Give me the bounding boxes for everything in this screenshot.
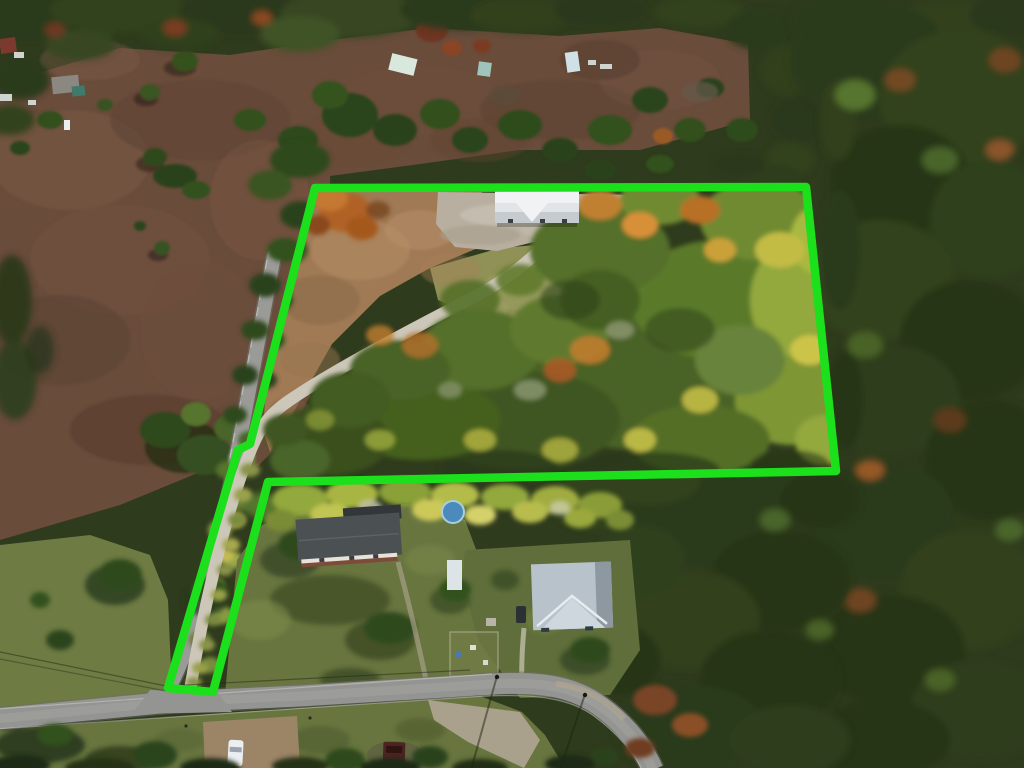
- pasture-tree: [498, 110, 542, 140]
- autumn-tree: [464, 429, 496, 451]
- autumn-tree: [624, 428, 656, 452]
- lawn-shade: [46, 630, 74, 650]
- roadside-tree: [223, 406, 247, 424]
- forest-canopy: [163, 20, 187, 36]
- autumn-tree: [346, 216, 378, 240]
- pasture-tree: [312, 81, 348, 109]
- house-b-window: [585, 626, 593, 630]
- lawn-shade: [364, 612, 416, 644]
- forest-canopy: [835, 80, 875, 110]
- forest-canopy: [780, 472, 860, 528]
- pasture-tree: [37, 111, 63, 129]
- autumn-tree: [496, 264, 544, 296]
- forest-canopy: [995, 519, 1024, 541]
- autumn-tree: [440, 280, 500, 320]
- pasture-tree: [674, 118, 706, 142]
- white-trailer: [0, 94, 12, 101]
- autumn-tree: [199, 639, 215, 651]
- house-a-window: [373, 554, 378, 558]
- forest-canopy: [260, 16, 340, 52]
- car-windshield: [230, 747, 242, 753]
- foreground-tree: [591, 747, 619, 765]
- pasture-tree: [10, 141, 30, 155]
- small-shed: [600, 64, 612, 69]
- pasture-tree: [442, 40, 462, 56]
- pasture-tree: [726, 118, 758, 142]
- pasture-tree: [373, 114, 417, 146]
- red-roof-house: [0, 37, 17, 54]
- forest-canopy: [806, 620, 834, 640]
- blue-garden-box: [455, 652, 462, 658]
- pasture-tree: [452, 127, 488, 153]
- main-house-door: [508, 219, 513, 223]
- autumn-tree: [222, 538, 240, 552]
- lawn-shade: [491, 570, 519, 590]
- white-rv: [447, 560, 462, 590]
- utility-pole: [495, 675, 499, 679]
- parked-car: [64, 120, 70, 130]
- sunlit-tree: [464, 505, 496, 525]
- foreground-tree: [625, 738, 655, 758]
- gravel-streak: [440, 225, 520, 245]
- main-house: [495, 189, 579, 227]
- forest-canopy: [715, 155, 765, 175]
- pasture-tree: [140, 84, 160, 100]
- forest-canopy: [844, 588, 876, 612]
- pasture-tree: [97, 99, 113, 111]
- house-b-window: [541, 628, 549, 632]
- pasture-tree: [473, 39, 491, 53]
- forest-canopy: [934, 408, 966, 432]
- pasture-tree: [584, 160, 616, 180]
- pasture-tree: [154, 241, 170, 255]
- house-a-window: [319, 558, 324, 562]
- roadside-tree: [232, 365, 258, 385]
- autumn-tree: [544, 358, 576, 382]
- teal-outbuilding: [477, 61, 492, 77]
- house-b: [531, 562, 613, 633]
- forest-canopy: [847, 332, 883, 358]
- forest-canopy: [925, 669, 955, 691]
- main-house-window: [540, 219, 545, 223]
- white-shed: [28, 100, 36, 105]
- autumn-tree: [270, 440, 330, 480]
- forest-canopy: [989, 48, 1021, 72]
- lawn-shade: [570, 637, 610, 663]
- forest-canopy: [820, 190, 860, 310]
- autumn-tree: [755, 232, 805, 268]
- pasture-tree: [646, 155, 674, 173]
- forest-canopy: [856, 460, 884, 480]
- pasture-tree: [542, 138, 578, 162]
- small-shed: [588, 60, 596, 65]
- autumn-tree: [578, 190, 622, 220]
- foreground-tree: [133, 741, 177, 768]
- autumn-tree: [682, 387, 718, 413]
- autumn-tree: [306, 410, 334, 430]
- autumn-tree: [217, 564, 233, 576]
- autumn-tree: [680, 196, 720, 224]
- forest-canopy: [760, 509, 790, 531]
- autumn-tree: [570, 336, 610, 364]
- autumn-tree: [205, 614, 221, 626]
- autumn-tree: [622, 212, 658, 238]
- main-house-shadow: [497, 223, 577, 227]
- autumn-tree: [263, 414, 307, 446]
- autumn-tree: [704, 238, 736, 262]
- roadside-tree: [249, 273, 281, 297]
- autumn-tree: [438, 382, 462, 398]
- autumn-tree: [186, 677, 202, 687]
- autumn-tree: [211, 589, 227, 601]
- mailbox: [308, 716, 311, 719]
- autumn-tree: [402, 332, 438, 358]
- autumn-tree: [192, 662, 208, 674]
- pasture-tree: [420, 99, 460, 129]
- autumn-tree: [606, 321, 634, 339]
- aerial-photo: [0, 0, 1024, 768]
- garden-shed: [486, 618, 496, 626]
- forest-canopy: [725, 10, 795, 50]
- sunlit-tree: [606, 510, 634, 530]
- truck-cab: [386, 746, 402, 754]
- mailbox: [184, 724, 187, 727]
- forest-canopy: [252, 11, 272, 25]
- forest-canopy: [885, 69, 915, 91]
- foreground-tree: [633, 685, 677, 715]
- autumn-tree: [366, 201, 390, 219]
- white-shed: [14, 52, 24, 58]
- autumn-tree: [366, 325, 394, 345]
- forest-canopy: [45, 23, 65, 37]
- lawn-shade: [98, 559, 142, 591]
- pasture-tree: [134, 221, 146, 231]
- foreground-tree: [672, 713, 708, 737]
- pasture-tree: [588, 115, 632, 145]
- autumn-tree: [228, 513, 246, 527]
- white-trailer: [565, 51, 581, 73]
- pasture-tree: [182, 181, 210, 199]
- sunlit-tree: [512, 501, 548, 523]
- autumn-tree: [234, 488, 252, 502]
- pasture-tree: [632, 87, 668, 113]
- pasture-tree: [143, 148, 167, 166]
- forest-canopy: [986, 140, 1014, 160]
- aerial-photo-stage: [0, 0, 1024, 768]
- pasture-tree: [181, 402, 211, 426]
- pasture-tree: [234, 109, 266, 131]
- sunlit-tree: [264, 509, 296, 531]
- autumn-tree: [240, 463, 260, 477]
- teal-roof-shed: [72, 85, 86, 96]
- forest-canopy: [26, 326, 54, 374]
- autumn-tree: [365, 430, 395, 450]
- roadside-tree: [241, 320, 269, 340]
- utility-pole: [583, 693, 587, 697]
- house-a-window: [349, 556, 354, 560]
- pasture-tree: [682, 82, 718, 102]
- roadside-tree: [248, 170, 292, 200]
- pasture-tree: [653, 128, 673, 144]
- pasture-tree: [489, 86, 521, 104]
- autumn-tree: [514, 380, 546, 400]
- autumn-tree: [540, 280, 600, 320]
- white-garden-box: [483, 660, 488, 665]
- sunlit-tree: [550, 501, 570, 515]
- house-b-roof-shade: [595, 562, 613, 629]
- foreground-tree: [37, 724, 73, 746]
- pasture-tree: [172, 51, 198, 71]
- autumn-tree: [645, 308, 715, 352]
- dark-suv: [516, 606, 526, 623]
- white-garden-box: [470, 645, 476, 650]
- forest-canopy: [922, 147, 958, 173]
- main-house-window: [562, 219, 567, 223]
- lawn-shade: [30, 592, 50, 608]
